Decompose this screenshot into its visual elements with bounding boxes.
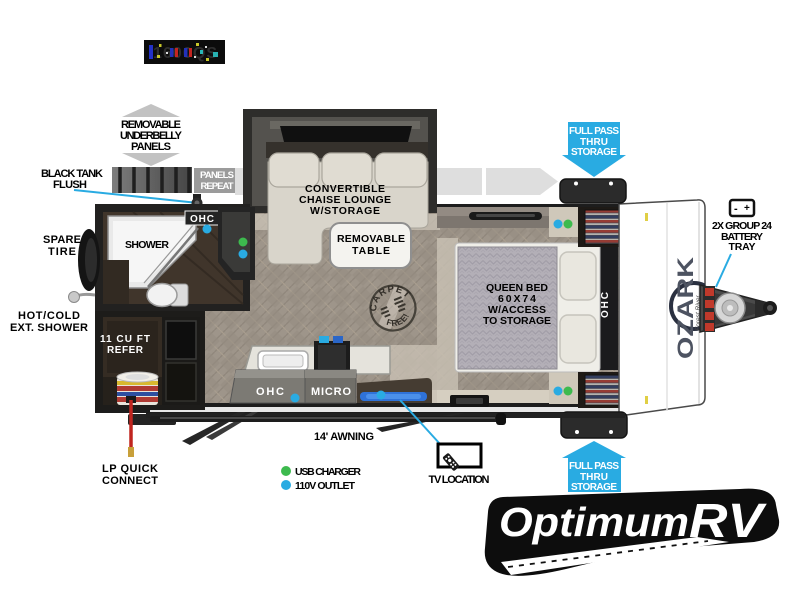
svg-text:OHC: OHC (256, 386, 284, 398)
svg-text:110V OUTLET: 110V OUTLET (295, 480, 356, 492)
svg-text:FULL PASS: FULL PASS (569, 461, 619, 472)
svg-text:OHC: OHC (190, 214, 214, 225)
svg-text:SHOWER: SHOWER (125, 239, 169, 251)
svg-text:FLUSH: FLUSH (53, 179, 87, 191)
svg-text:STORAGE: STORAGE (571, 482, 617, 493)
svg-text:LP QUICK: LP QUICK (102, 463, 158, 475)
svg-text:REFER: REFER (107, 345, 144, 356)
svg-text:CONNECT: CONNECT (102, 475, 158, 487)
svg-text:Optimum: Optimum (499, 499, 689, 545)
svg-text:TV LOCATION: TV LOCATION (429, 474, 490, 486)
svg-text:+: + (744, 203, 750, 214)
svg-text:TO STORAGE: TO STORAGE (483, 315, 551, 327)
svg-text:PANELS: PANELS (200, 170, 234, 181)
svg-text:TABLE: TABLE (352, 245, 390, 257)
svg-text:HOT/COLD: HOT/COLD (18, 310, 80, 322)
svg-text:-: - (734, 203, 738, 215)
svg-text:14' AWNING: 14' AWNING (314, 431, 374, 443)
svg-text:OHC: OHC (600, 292, 611, 318)
svg-text:EXT. SHOWER: EXT. SHOWER (10, 322, 88, 334)
svg-text:TRAY: TRAY (729, 241, 756, 253)
svg-text:W/STORAGE: W/STORAGE (310, 205, 380, 217)
svg-text:STORAGE: STORAGE (571, 147, 617, 158)
svg-text:MICRO: MICRO (311, 386, 351, 398)
svg-text:FULL PASS: FULL PASS (569, 126, 619, 137)
svg-text:SPARE: SPARE (43, 234, 81, 246)
svg-text:REPEAT: REPEAT (201, 181, 234, 192)
svg-text:11 CU FT: 11 CU FT (100, 334, 150, 345)
svg-text:USB CHARGER: USB CHARGER (295, 466, 361, 478)
svg-text:REMOVABLE: REMOVABLE (337, 233, 405, 245)
svg-text:PANELS: PANELS (131, 141, 171, 153)
svg-text:TIRE: TIRE (48, 246, 76, 258)
